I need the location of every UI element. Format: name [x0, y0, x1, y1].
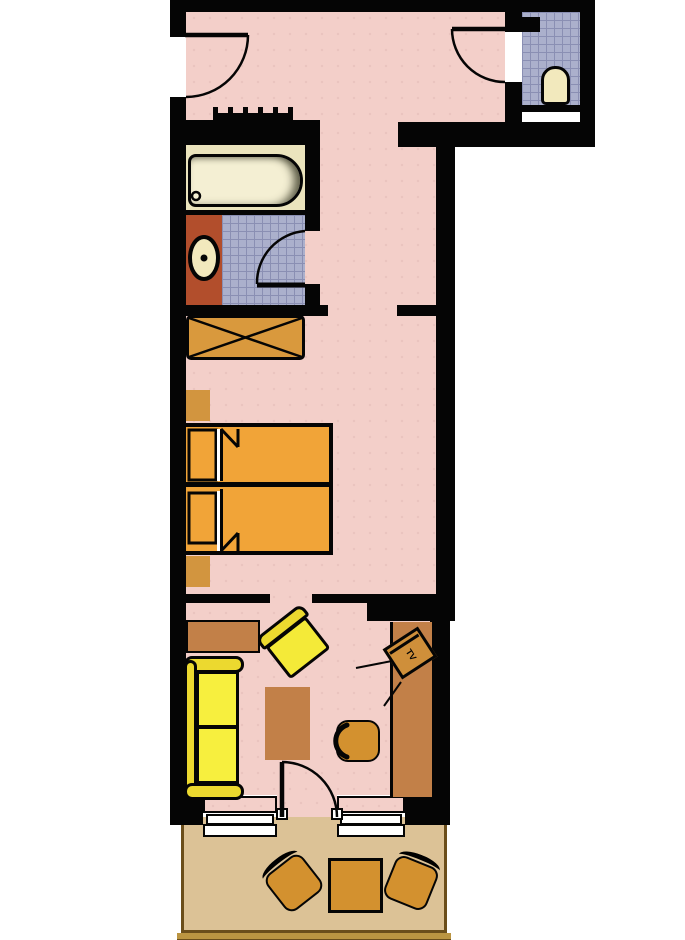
double-bed [182, 423, 333, 555]
wall-living-right [430, 621, 450, 797]
coffee-table [265, 687, 310, 760]
sideboard [186, 620, 260, 653]
bathtub [188, 154, 303, 207]
wall-bathroom-right-b [305, 284, 320, 305]
desk-chair [336, 720, 380, 762]
wall-wc-divider-upper [505, 0, 522, 17]
balcony-outer-band [177, 933, 451, 940]
wall-wc-under-tile [522, 105, 580, 112]
wall-wc-divider-lower [505, 82, 522, 127]
window-right-sill-outer [337, 824, 405, 837]
tv-label: TV [397, 637, 425, 673]
floor-plan: TV [0, 0, 685, 940]
wall-corridor-stub [397, 305, 438, 316]
balcony-door-jamb-right [331, 808, 343, 820]
wall-right-main [436, 145, 455, 594]
sofa-cushion-top [196, 671, 239, 728]
wall-bottom-right-block [405, 795, 450, 825]
balcony-table [328, 858, 383, 913]
nightstand-top [186, 390, 210, 421]
balcony-door-jamb-left [276, 808, 288, 820]
wall-divider-b [312, 594, 367, 603]
bathroom-tile-floor [222, 215, 305, 305]
wall-corner-block [367, 594, 455, 621]
wardrobe [186, 315, 305, 360]
wall-bathroom-top [170, 120, 320, 145]
wall-hall-bottom-right [398, 122, 595, 147]
vanity-counter [186, 215, 222, 305]
nightstand-bottom [186, 556, 210, 587]
wc-window [522, 112, 580, 122]
sofa-armrest-bottom [184, 783, 244, 800]
entrance-hall-floor [186, 10, 505, 125]
wall-bathroom-right-a [305, 145, 320, 231]
wall-wc-divider-step [505, 17, 540, 32]
wall-top [170, 0, 593, 12]
bed-mattress-divider [186, 482, 329, 487]
window-right-glass [337, 796, 405, 813]
wall-left-upper [170, 0, 186, 37]
sofa-cushion-bottom [196, 726, 239, 784]
wall-bathroom-bottom [170, 305, 328, 316]
toilet [541, 66, 570, 105]
window-left-sill-outer [203, 824, 277, 837]
wall-divider-a [170, 594, 270, 603]
